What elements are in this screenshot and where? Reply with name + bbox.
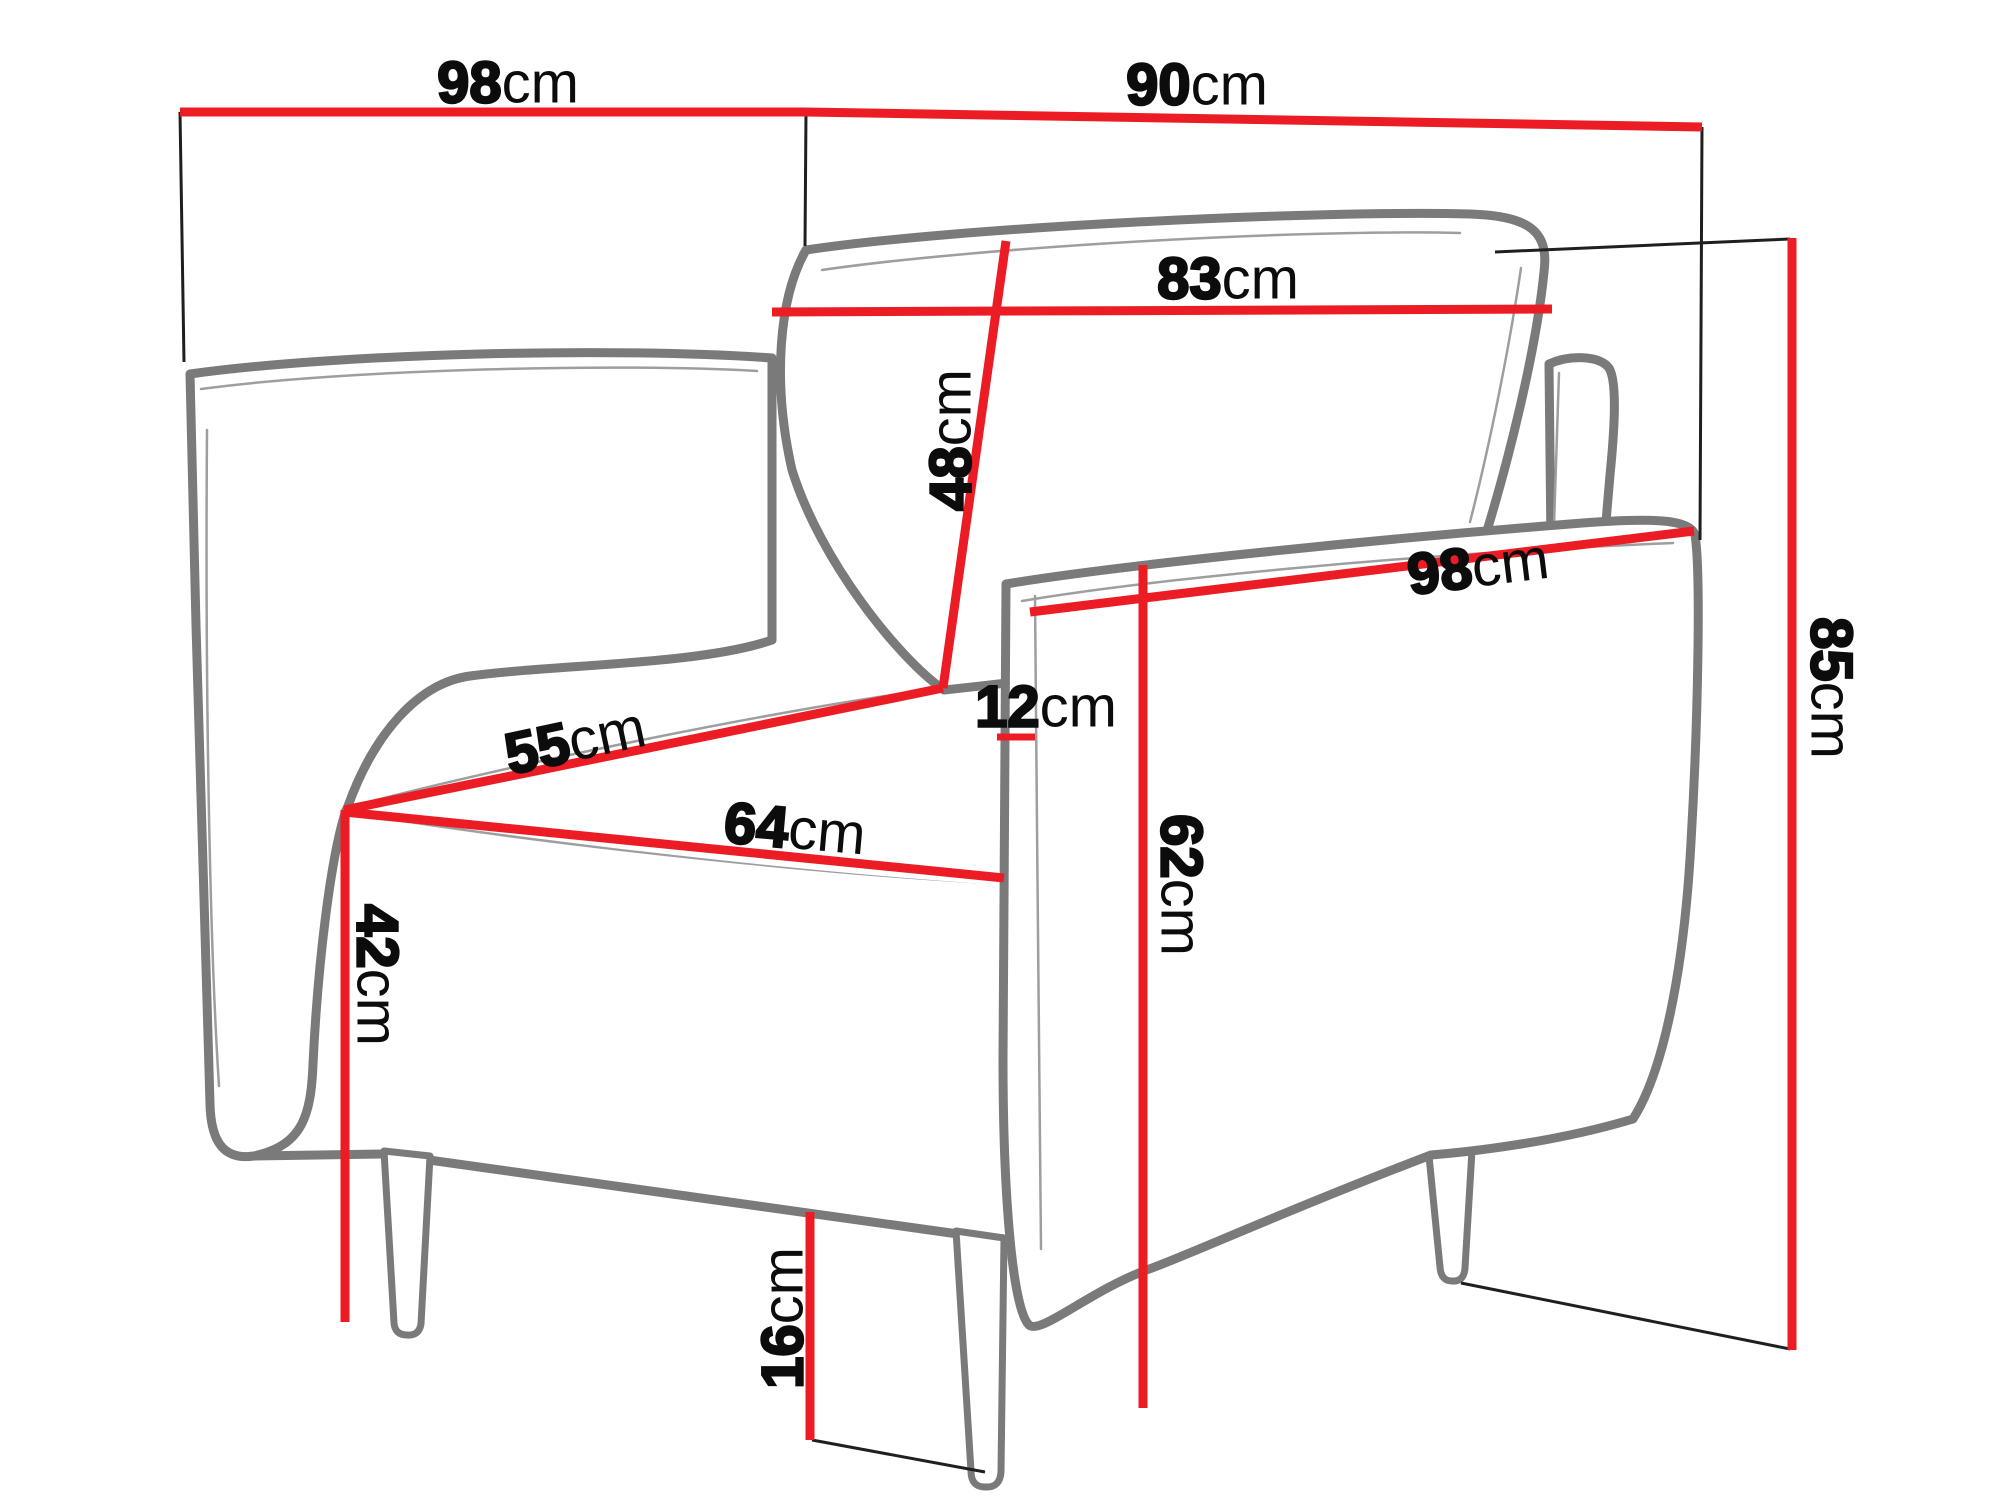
front-right-leg xyxy=(956,1231,1004,1487)
front-left-leg xyxy=(384,1151,430,1335)
dim-85-total-height: 85cm xyxy=(1799,617,1864,759)
rear-right-leg xyxy=(1428,1146,1472,1281)
armrest-outline xyxy=(1003,520,1698,1326)
ext-right-vertical xyxy=(1700,127,1702,540)
ext-left-vertical xyxy=(180,112,184,362)
dim-64-seat-width: 64cm xyxy=(721,790,868,867)
dim-16-leg-height: 16cm xyxy=(750,1247,815,1389)
diagram-canvas: 98cm90cm83cm48cm98cm12cm55cm64cm62cm42cm… xyxy=(0,0,2000,1500)
dim-12-armrest-width: 12cm xyxy=(975,674,1117,739)
dim-90-width-top: 90cm xyxy=(1126,52,1268,117)
dim-83-backrest-width: 83cm xyxy=(1157,246,1299,311)
dim-62-armrest-height: 62cm xyxy=(1149,814,1214,956)
armchair-dimension-diagram: 98cm90cm83cm48cm98cm12cm55cm64cm62cm42cm… xyxy=(0,0,2000,1500)
ext-mid-vertical xyxy=(805,112,806,246)
ext-bottom-diagonal xyxy=(1461,1283,1790,1349)
dim-48-backrest-height: 48cm xyxy=(918,369,983,511)
floor-line-16 xyxy=(812,1440,985,1472)
dim-42-seat-height: 42cm xyxy=(345,904,410,1046)
dim-98-depth-top: 98cm xyxy=(437,50,579,115)
